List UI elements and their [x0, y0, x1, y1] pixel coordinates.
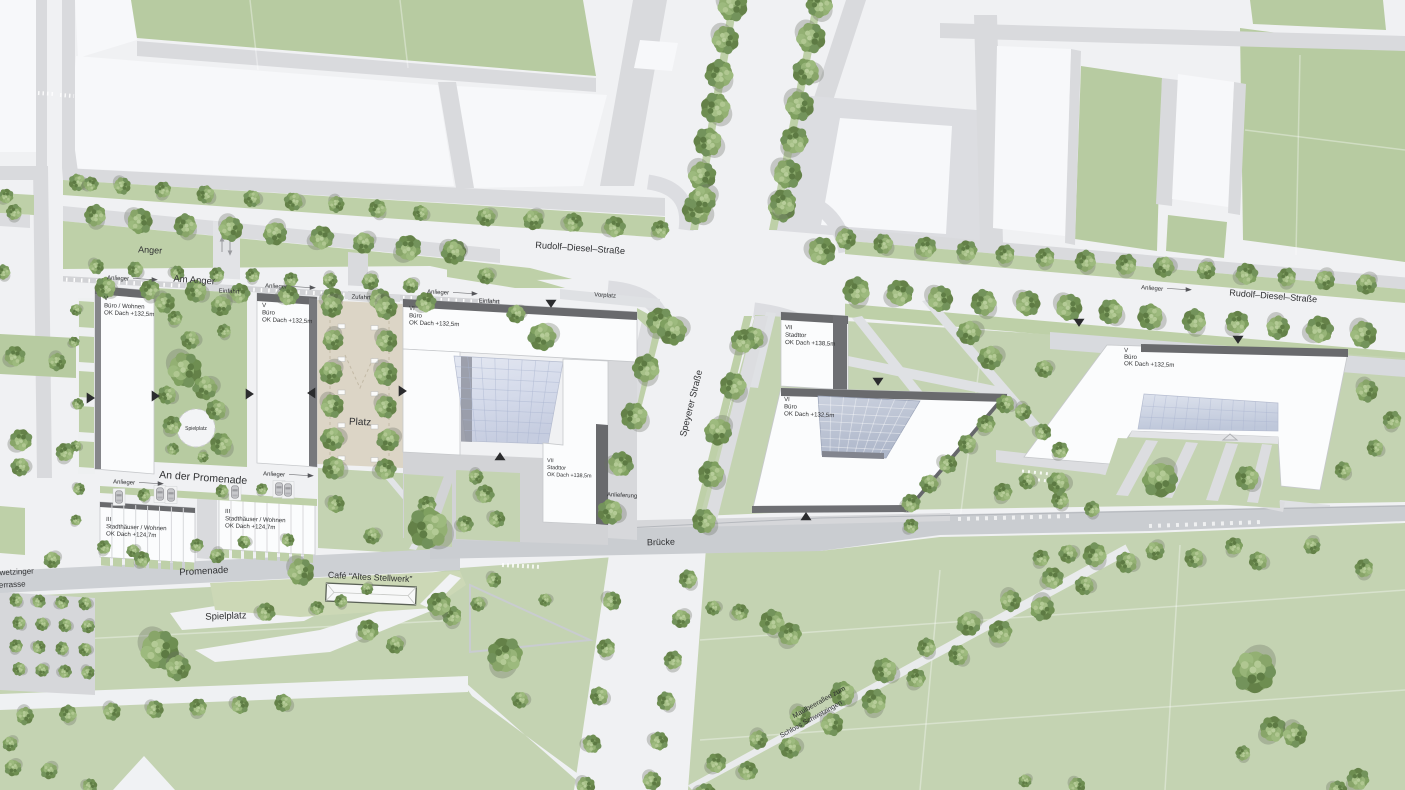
- svg-text:Anlieger: Anlieger: [265, 283, 287, 290]
- svg-text:Einfahrt: Einfahrt: [219, 288, 240, 295]
- svg-text:Platz: Platz: [349, 417, 372, 429]
- svg-text:Brücke: Brücke: [647, 537, 675, 548]
- svg-text:Spielplatz: Spielplatz: [185, 426, 207, 432]
- svg-text:III: III: [225, 508, 231, 515]
- svg-text:Terrasse: Terrasse: [0, 579, 26, 590]
- svg-text:Stadttor: Stadttor: [547, 465, 566, 472]
- svg-text:Spielplatz: Spielplatz: [205, 610, 247, 622]
- svg-text:Stadttor: Stadttor: [785, 332, 807, 340]
- svg-text:VI: VI: [409, 305, 415, 312]
- svg-text:Anger: Anger: [138, 244, 163, 255]
- svg-text:Anlieger: Anlieger: [427, 289, 449, 296]
- svg-text:III: III: [106, 516, 112, 523]
- svg-text:VII: VII: [785, 324, 793, 331]
- svg-text:Einfahrt: Einfahrt: [479, 298, 500, 305]
- svg-text:Zufahrt: Zufahrt: [351, 295, 371, 302]
- svg-text:Anlieger: Anlieger: [113, 479, 135, 486]
- svg-text:VI: VI: [784, 396, 790, 403]
- svg-text:Anlieger: Anlieger: [263, 471, 285, 478]
- svg-text:VII: VII: [547, 458, 554, 464]
- svg-text:Anlieger: Anlieger: [107, 275, 129, 282]
